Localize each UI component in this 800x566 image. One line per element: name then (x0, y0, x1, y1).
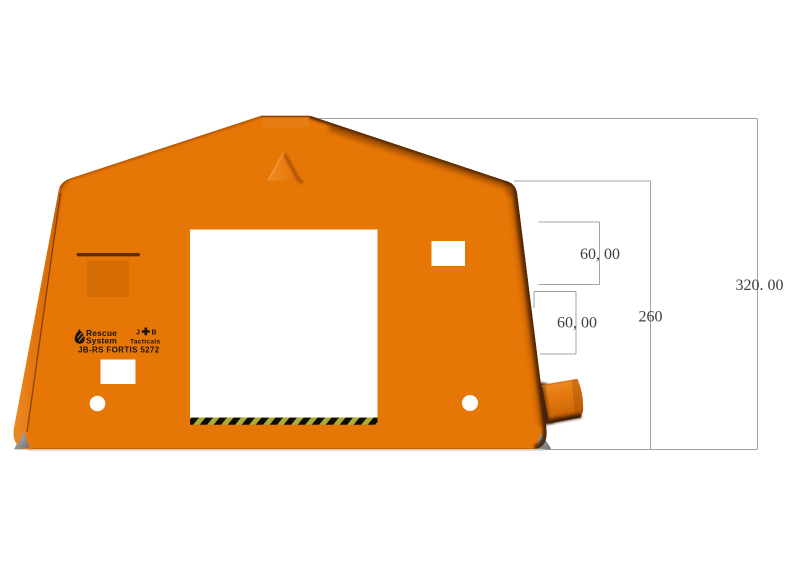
svg-text:Tacticals: Tacticals (130, 339, 160, 346)
svg-text:System: System (86, 336, 117, 346)
svg-text:J: J (136, 330, 140, 337)
svg-text:JB-RS FORTIS 5272: JB-RS FORTIS 5272 (78, 346, 160, 355)
svg-text:B: B (152, 330, 157, 337)
svg-text:320. 00: 320. 00 (736, 277, 784, 294)
svg-text:60, 00: 60, 00 (580, 246, 620, 263)
svg-text:260: 260 (639, 309, 663, 326)
svg-text:60, 00: 60, 00 (557, 315, 597, 332)
